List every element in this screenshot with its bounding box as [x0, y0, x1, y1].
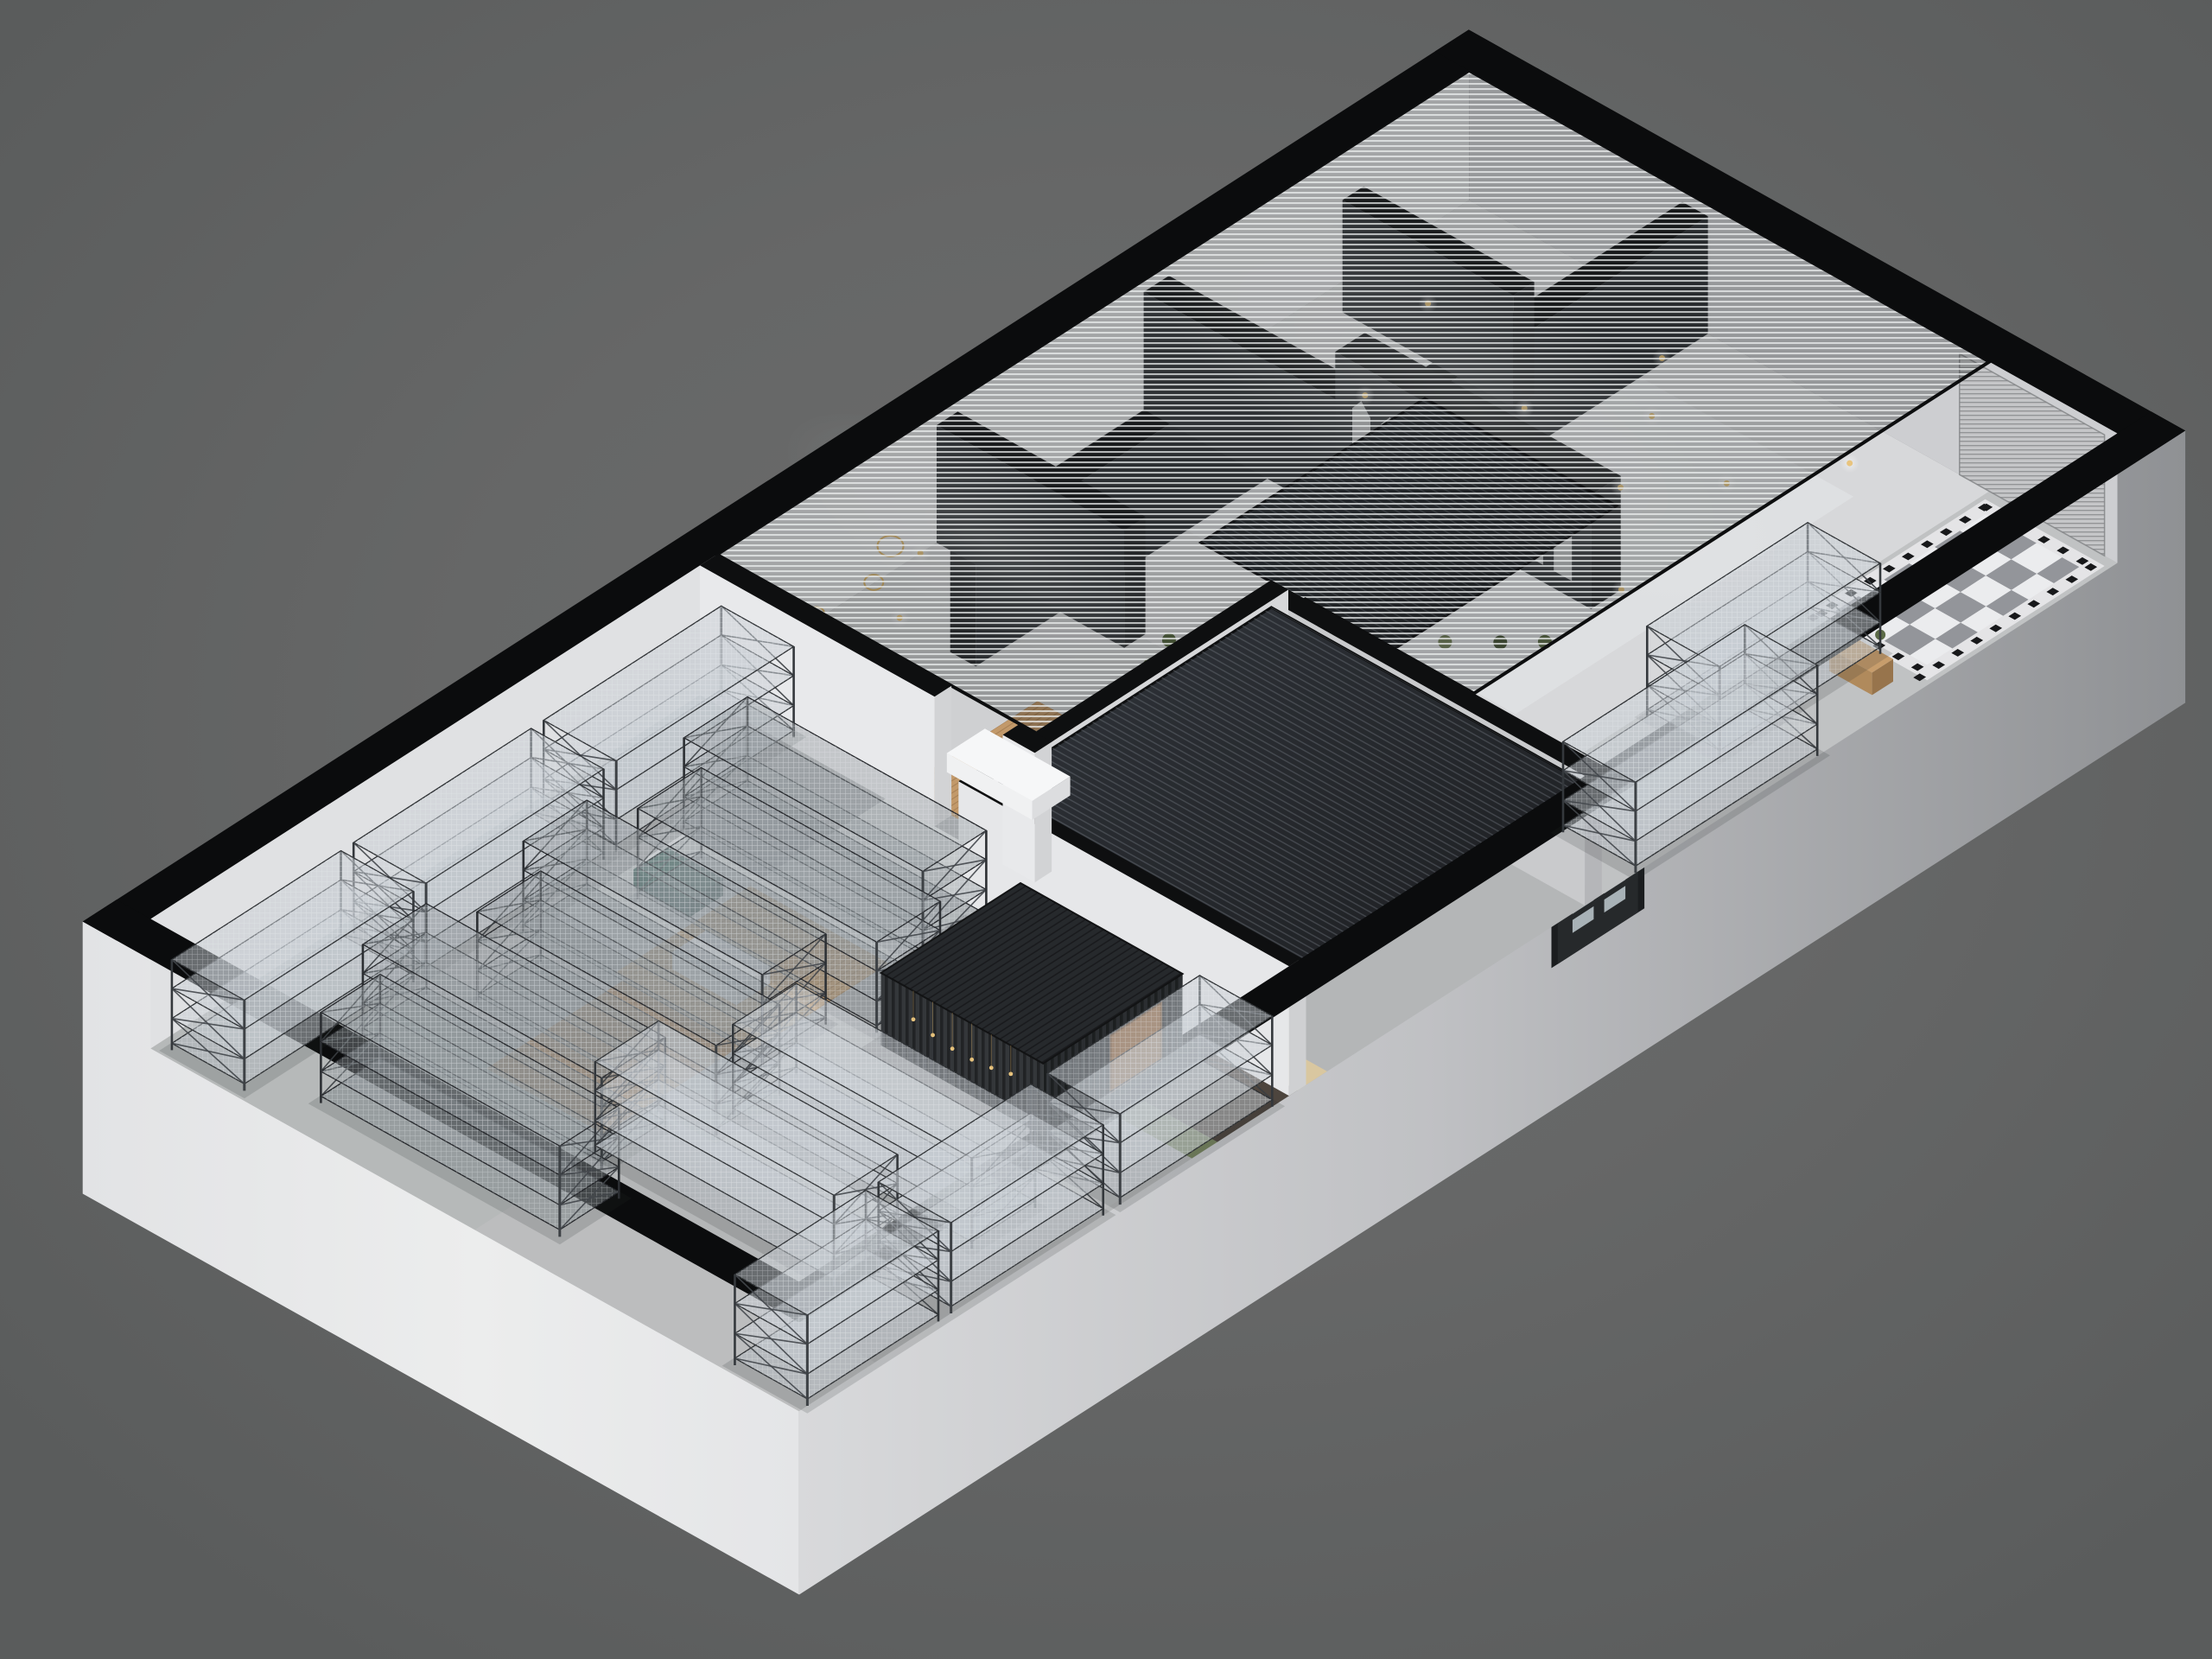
isometric-scene	[0, 0, 2212, 1659]
floorplan-3d-render	[0, 0, 2212, 1659]
